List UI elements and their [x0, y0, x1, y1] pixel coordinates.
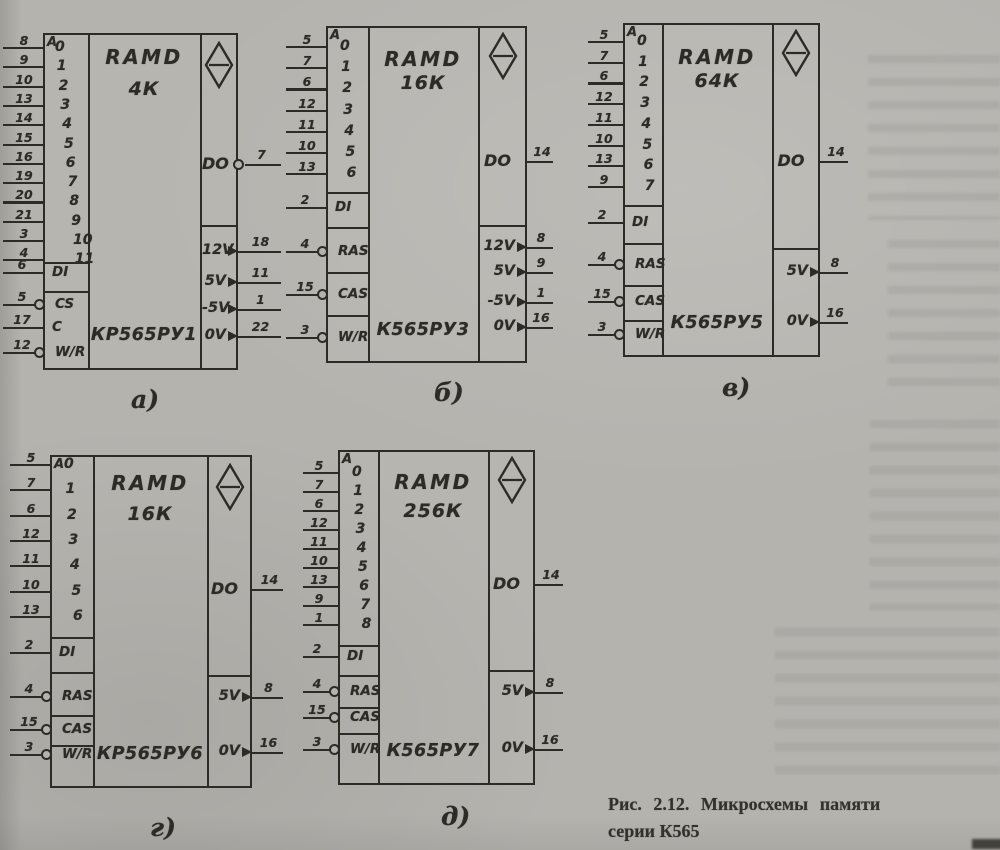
power-pin-label: 12V [202, 242, 226, 258]
inversion-circle-icon [233, 159, 244, 170]
pin-number: 10 [589, 131, 619, 146]
pin-number: 5 [16, 450, 46, 465]
control-pin-label: CAS [338, 286, 368, 302]
address-line-label: 4 [641, 116, 651, 132]
pin-stub [10, 652, 50, 654]
pin-number: 8 [9, 33, 39, 48]
section-divider [326, 192, 368, 194]
pin-number: 13 [16, 602, 46, 617]
power-arrowhead-icon [228, 304, 238, 314]
address-line-label: 10 [73, 232, 92, 248]
pin-stub [527, 272, 553, 274]
section-divider [478, 225, 527, 227]
address-line-label: 2 [59, 78, 69, 94]
pin-stub [588, 264, 615, 266]
pin-stub [3, 272, 43, 274]
pin-stub [238, 251, 281, 253]
pin-stub [527, 247, 553, 249]
address-line-label: 3 [69, 532, 79, 548]
pin-number: 9 [531, 255, 551, 270]
pin-stub [3, 327, 43, 329]
figure-letter-label: д) [441, 802, 470, 831]
chip-family-title: RAMD [368, 47, 478, 71]
address-line-label: 2 [67, 507, 77, 523]
address-block-label: A [342, 452, 352, 467]
address-line-label: 7 [645, 178, 655, 194]
pin-number: 7 [589, 48, 619, 63]
address-line-label: 4 [357, 540, 367, 556]
pin-number: 15 [302, 702, 332, 717]
chip-capacity-title: 4К [88, 78, 200, 100]
pin-stub [238, 336, 281, 338]
control-pin-label: CAS [62, 721, 92, 737]
section-divider [488, 670, 535, 672]
pin-number: 8 [256, 680, 281, 695]
pin-number: 2 [587, 207, 617, 222]
pin-stub [10, 729, 42, 731]
pin-number: 10 [16, 577, 46, 592]
power-pin-label: 0V [490, 740, 523, 756]
pin-number: 16 [824, 305, 846, 320]
chip-diagram-b: A5071621231141051362DI4RAS15CAS3W/RDO141… [286, 26, 588, 428]
address-line-label: 1 [638, 54, 648, 70]
address-line-label: 4 [62, 116, 72, 132]
pin-number: 18 [242, 234, 279, 249]
figure-letter-label: в) [722, 373, 750, 402]
pin-stub [588, 301, 615, 303]
pin-number: 4 [290, 236, 320, 251]
control-pin-label: W/R [635, 326, 665, 342]
chip-diagram-v: A507162123114105136972DI4RAS15CAS3W/RDO1… [588, 23, 890, 425]
pin-stub [527, 327, 553, 329]
chip-diagram-g: A5071621231141051362DI4RAS15CAS3W/RDO145… [10, 455, 312, 850]
address-line-label: 6 [347, 165, 357, 181]
pin-number: 14 [258, 572, 281, 587]
pin-number: 8 [539, 675, 561, 690]
address-line-label: 9 [71, 213, 81, 229]
pin-number: 3 [302, 734, 332, 749]
address-block-label: A [54, 457, 64, 472]
pin-number: 11 [589, 110, 619, 125]
pin-number: 9 [304, 591, 334, 606]
pin-number: 6 [7, 257, 37, 272]
caption-line-1: Рис. 2.12. Микросхемы памяти [608, 791, 1000, 818]
address-block-label: A [627, 25, 637, 40]
pin-number: 17 [7, 312, 37, 327]
pin-number: 6 [292, 74, 322, 89]
power-arrowhead-icon [228, 277, 238, 287]
pin-number: 22 [242, 319, 279, 334]
pin-number: 7 [16, 475, 46, 490]
power-pin-label: 0V [480, 318, 515, 334]
pin-number: 8 [824, 255, 846, 270]
section-divider [326, 272, 368, 274]
chip-family-title: RAMD [93, 471, 207, 495]
pin-number: 1 [531, 285, 551, 300]
ic-right-column-divider [488, 450, 490, 785]
control-pin-label: CS [55, 296, 74, 312]
pin-stub [238, 309, 281, 311]
chip-family-title: RAMD [378, 470, 488, 494]
address-line-label: 3 [640, 95, 650, 111]
pin-number: 2 [290, 192, 320, 207]
pin-stub [252, 752, 283, 754]
pin-number: 3 [9, 226, 39, 241]
pin-stub [535, 749, 563, 751]
pin-number: 14 [533, 144, 551, 159]
control-pin-label: W/R [350, 741, 380, 757]
control-pin-label: DI [632, 214, 648, 230]
memory-diamond-icon [781, 29, 811, 77]
memory-diamond-icon [488, 32, 518, 80]
section-divider [50, 637, 93, 639]
power-pin-label: 5V [490, 683, 523, 699]
power-arrowhead-icon [242, 747, 252, 757]
pin-number: 12 [304, 515, 334, 530]
pin-stub [286, 337, 318, 339]
control-pin-label: W/R [62, 746, 92, 762]
power-pin-label: 0V [774, 313, 808, 329]
power-arrowhead-icon [517, 297, 527, 307]
pin-number: 4 [14, 681, 44, 696]
section-divider [338, 645, 378, 647]
chip-capacity-title: 64К [662, 70, 772, 92]
address-line-label: 2 [639, 74, 649, 90]
pin-stub [252, 589, 283, 591]
address-line-label: 0 [55, 39, 65, 55]
pin-stub [527, 161, 553, 163]
pin-number: 5 [589, 27, 619, 42]
data-out-label: DO [202, 154, 226, 173]
data-out-label: DO [480, 151, 515, 170]
part-number: К565РУ5 [664, 313, 770, 333]
pin-number: 12 [292, 96, 322, 111]
page-bleed-through [775, 628, 1000, 783]
power-arrowhead-icon [242, 692, 252, 702]
address-line-label: 3 [343, 102, 353, 118]
pin-number: 1 [242, 292, 279, 307]
pin-number: 11 [304, 534, 334, 549]
address-line-label: 1 [353, 483, 363, 499]
pin-number: 4 [587, 249, 617, 264]
power-pin-label: -5V [480, 293, 515, 309]
figure-caption: Рис. 2.12. Микросхемы памяти серии К565 [608, 791, 1000, 845]
figure-letter-label: б) [434, 378, 464, 407]
power-arrowhead-icon [517, 267, 527, 277]
pin-stub [238, 282, 281, 284]
address-line-label: 1 [66, 481, 76, 497]
address-line-label: 2 [354, 502, 364, 518]
pin-number: 6 [16, 501, 46, 516]
pin-number: 15 [14, 714, 44, 729]
section-divider [207, 675, 252, 677]
power-arrowhead-icon [810, 267, 820, 277]
address-line-label: 4 [70, 557, 80, 573]
power-pin-label: 12V [480, 238, 515, 254]
memory-diamond-icon [497, 456, 527, 504]
figure-letter-label: г) [150, 813, 176, 842]
power-arrowhead-icon [525, 687, 535, 697]
power-pin-label: 5V [209, 688, 240, 704]
pin-stub [820, 322, 848, 324]
address-line-label: 5 [643, 137, 653, 153]
power-arrowhead-icon [517, 322, 527, 332]
part-number: КР565РУ1 [90, 325, 198, 345]
section-divider [338, 733, 378, 735]
pin-number: 10 [9, 72, 39, 87]
chip-capacity-title: 16К [368, 72, 478, 94]
address-line-label: 0 [64, 456, 74, 472]
chip-diagram-d: A50716212311410513697182DI4RAS15CAS3W/RD… [303, 450, 605, 850]
section-divider [50, 715, 93, 717]
ic-right-column-divider [772, 23, 774, 357]
section-divider [772, 248, 820, 250]
chip-family-title: RAMD [88, 45, 200, 69]
ic-right-column-divider [478, 26, 480, 363]
pin-number: 11 [242, 265, 279, 280]
pin-stub [245, 164, 281, 166]
chip-family-title: RAMD [662, 45, 772, 69]
section-divider [326, 227, 368, 229]
control-pin-label: DI [52, 264, 68, 280]
pin-stub [535, 692, 563, 694]
power-pin-label: 0V [202, 327, 226, 343]
power-pin-label: 5V [480, 263, 515, 279]
pin-number: 7 [292, 53, 322, 68]
figure-letter-label: а) [131, 385, 159, 414]
address-line-label: 5 [64, 136, 74, 152]
pin-stub [252, 697, 283, 699]
pin-number: 6 [304, 496, 334, 511]
pin-stub [535, 584, 563, 586]
power-pin-label: 0V [209, 743, 240, 759]
pin-number: 4 [302, 676, 332, 691]
part-number: К565РУ7 [380, 741, 486, 761]
address-line-label: 6 [359, 578, 369, 594]
ic-right-column-divider [207, 455, 209, 788]
address-line-label: 6 [73, 608, 83, 624]
power-arrowhead-icon [228, 331, 238, 341]
pin-number: 11 [16, 551, 46, 566]
address-line-label: 3 [60, 97, 70, 113]
pin-number: 10 [292, 138, 322, 153]
pin-number: 13 [9, 91, 39, 106]
control-pin-label: W/R [338, 329, 368, 345]
pin-stub [303, 691, 330, 693]
address-line-label: 7 [360, 597, 370, 613]
pin-stub [527, 302, 553, 304]
pin-number: 15 [9, 130, 39, 145]
pin-number: 14 [826, 144, 846, 159]
pin-number: 5 [304, 458, 334, 473]
pin-stub [286, 294, 318, 296]
pin-stub [588, 222, 623, 224]
pin-number: 9 [9, 52, 39, 67]
pin-stub [303, 749, 330, 751]
chip-capacity-title: 256К [378, 500, 488, 522]
address-line-label: 1 [57, 58, 67, 74]
data-out-label: DO [490, 574, 523, 593]
section-divider [623, 320, 662, 322]
pin-number: 2 [14, 637, 44, 652]
pin-stub [303, 656, 338, 658]
pin-number: 16 [256, 735, 281, 750]
pin-stub [10, 754, 42, 756]
address-line-label: 8 [69, 193, 79, 209]
power-arrowhead-icon [517, 242, 527, 252]
pin-number: 3 [290, 322, 320, 337]
pin-number: 1 [304, 610, 334, 625]
address-line-label: 8 [362, 616, 372, 632]
pin-stub [286, 251, 318, 253]
section-divider [200, 225, 238, 227]
address-line-label: 6 [644, 157, 654, 173]
pin-stub [588, 334, 615, 336]
address-line-label: 0 [340, 38, 350, 54]
address-line-label: 5 [72, 583, 82, 599]
pin-number: 13 [292, 159, 322, 174]
pin-number: 14 [541, 567, 561, 582]
address-line-label: 0 [637, 33, 647, 49]
control-pin-label: CAS [635, 293, 665, 309]
pin-stub [10, 696, 42, 698]
control-pin-label: RAS [62, 688, 93, 704]
pin-number: 16 [539, 732, 561, 747]
pin-stub [303, 717, 330, 719]
scanned-page: A80911021331441551661972082193104116DI5C… [0, 0, 1000, 850]
chip-diagram-a: A80911021331441551661972082193104116DI5C… [3, 33, 305, 435]
section-divider [338, 675, 378, 677]
address-line-label: 5 [358, 559, 368, 575]
pin-stub [286, 207, 326, 209]
pin-number: 16 [9, 149, 39, 164]
control-pin-label: RAS [635, 256, 666, 272]
control-pin-label: RAS [350, 683, 381, 699]
control-pin-label: DI [59, 644, 75, 660]
pin-number: 13 [589, 151, 619, 166]
pin-number: 7 [244, 147, 279, 162]
pin-number: 13 [304, 572, 334, 587]
pin-number: 15 [290, 279, 320, 294]
caption-line-2: серии К565 [608, 818, 1000, 845]
pin-number: 21 [9, 207, 39, 222]
pin-number: 14 [9, 110, 39, 125]
pin-number: 12 [16, 526, 46, 541]
power-pin-label: 5V [202, 273, 226, 289]
pin-number: 15 [587, 286, 617, 301]
address-line-label: 4 [344, 123, 354, 139]
power-pin-label: 5V [774, 263, 808, 279]
ic-right-column-divider [200, 33, 202, 370]
control-pin-label: CAS [350, 709, 380, 725]
memory-diamond-icon [215, 463, 245, 511]
address-line-label: 5 [346, 144, 356, 160]
pin-number: 16 [531, 310, 551, 325]
section-divider [623, 243, 662, 245]
power-arrowhead-icon [810, 317, 820, 327]
section-divider [326, 315, 368, 317]
chip-capacity-title: 16К [93, 503, 207, 525]
address-line-label: 2 [342, 80, 352, 96]
control-pin-label: DI [347, 648, 363, 664]
control-pin-label: RAS [338, 243, 369, 259]
pin-number: 19 [9, 168, 39, 183]
power-arrowhead-icon [525, 744, 535, 754]
data-out-label: DO [774, 151, 808, 170]
address-line-label: 7 [68, 174, 78, 190]
pin-stub [820, 272, 848, 274]
pin-stub [3, 352, 35, 354]
pin-number: 7 [304, 477, 334, 492]
control-pin-label: DI [335, 199, 351, 215]
pin-number: 12 [589, 89, 619, 104]
address-line-label: 11 [75, 251, 94, 267]
pin-stub [820, 161, 848, 163]
pin-number: 8 [531, 230, 551, 245]
control-pin-label: W/R [55, 344, 85, 360]
part-number: К565РУ3 [370, 320, 476, 340]
pin-number: 12 [7, 337, 37, 352]
pin-number: 3 [14, 739, 44, 754]
address-line-label: 0 [352, 464, 362, 480]
pin-number: 20 [9, 187, 39, 202]
memory-diamond-icon [204, 41, 234, 89]
pin-number: 11 [292, 117, 322, 132]
address-block-label: A [330, 28, 340, 43]
section-divider [623, 205, 662, 207]
pin-number: 10 [304, 553, 334, 568]
page-corner-smudge [972, 839, 1000, 849]
data-out-label: DO [209, 579, 240, 598]
power-pin-label: -5V [202, 300, 226, 316]
address-line-label: 1 [341, 59, 351, 75]
section-divider [623, 285, 662, 287]
page-bleed-through [870, 420, 1000, 610]
control-pin-label: C [52, 319, 62, 335]
pin-number: 3 [587, 319, 617, 334]
address-line-label: 6 [66, 155, 76, 171]
pin-number: 9 [589, 172, 619, 187]
pin-number: 5 [7, 289, 37, 304]
pin-stub [3, 304, 35, 306]
pin-number: 5 [292, 32, 322, 47]
address-line-label: 3 [356, 521, 366, 537]
page-bleed-through [888, 240, 1000, 400]
pin-number: 6 [589, 68, 619, 83]
section-divider [43, 291, 88, 293]
part-number: КР565РУ6 [95, 744, 205, 764]
pin-number: 2 [302, 641, 332, 656]
power-arrowhead-icon [228, 246, 238, 256]
section-divider [50, 672, 93, 674]
